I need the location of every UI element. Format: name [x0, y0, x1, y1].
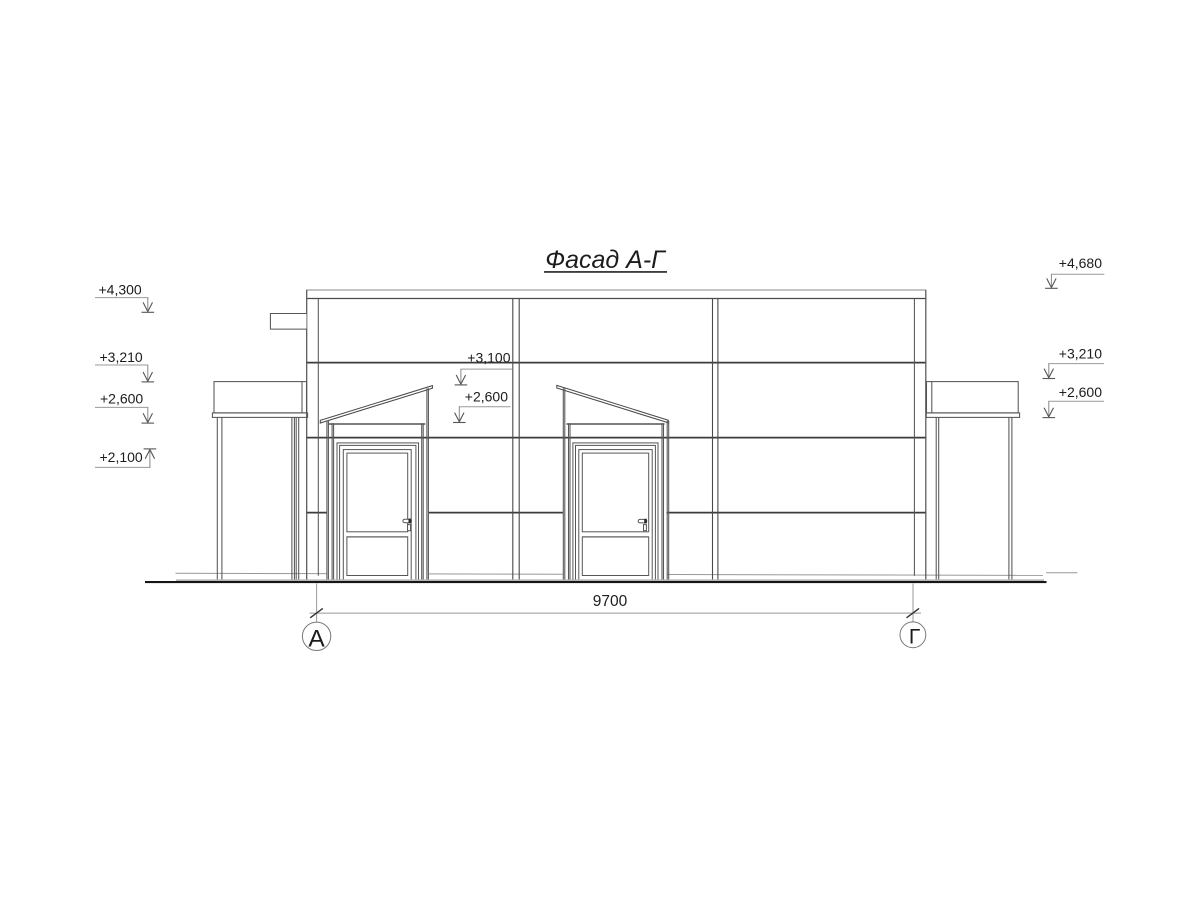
svg-text:+2,100: +2,100	[100, 449, 143, 465]
svg-text:А: А	[308, 625, 325, 652]
svg-text:+3,210: +3,210	[1059, 345, 1102, 361]
svg-text:+2,600: +2,600	[465, 389, 508, 405]
svg-text:+4,300: +4,300	[99, 282, 142, 298]
svg-text:+3,210: +3,210	[100, 349, 143, 365]
svg-text:Фасад А-Г: Фасад А-Г	[545, 246, 667, 274]
svg-text:+4,680: +4,680	[1059, 255, 1102, 271]
svg-text:9700: 9700	[593, 593, 628, 610]
svg-text:+3,100: +3,100	[467, 350, 510, 366]
svg-text:+2,600: +2,600	[100, 390, 143, 406]
svg-text:+2,600: +2,600	[1059, 384, 1102, 400]
svg-text:Г: Г	[909, 626, 920, 649]
